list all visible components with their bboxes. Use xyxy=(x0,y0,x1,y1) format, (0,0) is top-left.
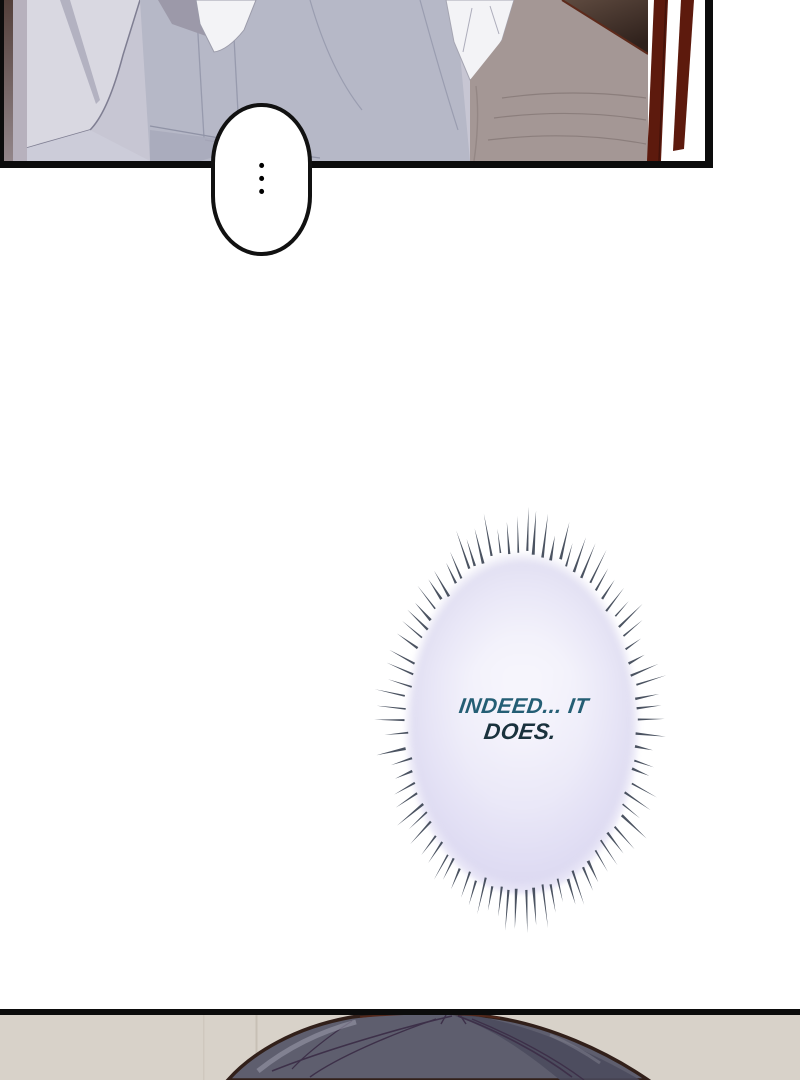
burst-speech-bubble: INDEED... IT DOES. xyxy=(362,497,682,947)
burst-text-line2: DOES. xyxy=(358,719,682,744)
panel-bottom xyxy=(0,1009,800,1080)
comic-page: • • • INDEED... IT DOES. xyxy=(0,0,800,1080)
ellipsis-dot: • xyxy=(258,185,264,200)
ellipsis-speech-bubble: • • • xyxy=(211,103,312,256)
burst-text-line1: INDEED... IT xyxy=(362,694,686,719)
panel-top-art xyxy=(0,0,713,168)
panel-bottom-art xyxy=(0,1009,800,1080)
panel-top xyxy=(0,0,713,168)
burst-text: INDEED... IT DOES. xyxy=(358,694,685,744)
